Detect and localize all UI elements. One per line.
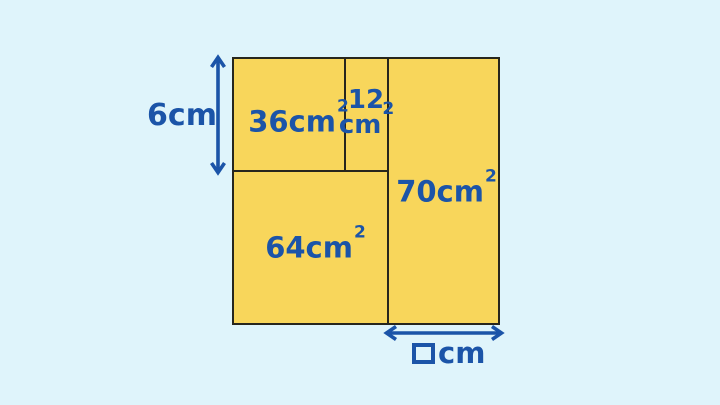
area-label-64-sup: 2	[354, 223, 366, 243]
bottom-dimension-unit: cm	[438, 339, 485, 368]
area-label-12-sup: 2	[382, 99, 394, 119]
area-label-36-text: 36cm	[248, 105, 336, 139]
area-label-64: 64cm2	[265, 234, 365, 263]
unknown-length-box	[412, 343, 435, 364]
area-label-12-line2: cm2	[339, 113, 393, 138]
bottom-dimension-label: cm	[412, 339, 485, 368]
area-label-70-text: 70cm	[396, 175, 484, 209]
area-label-70-sup: 2	[485, 167, 497, 187]
left-dimension-label: 6cm	[147, 101, 217, 131]
divider-line-horizontal	[232, 170, 389, 172]
area-label-70: 70cm2	[396, 178, 496, 207]
area-label-36: 36cm2	[248, 108, 348, 137]
area-label-12-text: cm	[339, 110, 382, 140]
double-arrow-vertical-icon	[208, 54, 228, 176]
area-label-12: 12 cm2	[339, 88, 393, 138]
geometry-diagram: 36cm2 12 cm2 70cm2 64cm2 6cm cm	[0, 0, 720, 405]
area-label-64-text: 64cm	[265, 231, 353, 265]
